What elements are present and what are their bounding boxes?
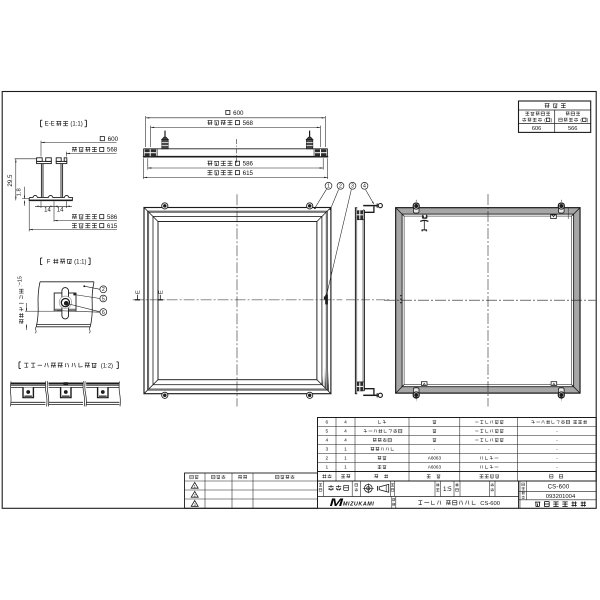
svg-text:F: F [47, 259, 51, 265]
svg-text:1: 1 [327, 184, 330, 190]
svg-text:568: 568 [107, 147, 118, 154]
svg-text:2: 2 [102, 287, 105, 293]
svg-text:(1:2): (1:2) [101, 363, 113, 369]
svg-text:2: 2 [339, 184, 342, 190]
svg-text:2: 2 [194, 494, 196, 498]
svg-text:600: 600 [108, 136, 119, 143]
svg-text:E: E [159, 290, 165, 294]
svg-text:3: 3 [351, 184, 354, 190]
svg-text:14: 14 [44, 207, 51, 213]
svg-text:(1:1): (1:1) [74, 259, 86, 265]
svg-text:3: 3 [325, 447, 328, 453]
svg-text:600: 600 [233, 110, 244, 117]
svg-text:E-E: E-E [45, 122, 55, 128]
svg-text:A6063: A6063 [428, 456, 442, 461]
svg-text:586: 586 [243, 161, 254, 168]
svg-text:1: 1 [194, 485, 196, 489]
svg-text:1: 1 [325, 465, 328, 471]
svg-text:4: 4 [325, 438, 328, 444]
svg-text:M: M [330, 497, 344, 509]
svg-text:4: 4 [344, 438, 347, 444]
svg-text:CS-600: CS-600 [548, 484, 570, 491]
svg-text:MIZUKAMI: MIZUKAMI [343, 502, 374, 508]
svg-text:4: 4 [363, 184, 366, 190]
svg-text:566: 566 [568, 126, 578, 132]
svg-text:29.5: 29.5 [7, 174, 14, 187]
svg-text:615: 615 [243, 170, 254, 177]
svg-text::~15: :~15 [17, 276, 23, 287]
svg-text:1:5: 1:5 [443, 486, 452, 493]
svg-text:E: E [136, 290, 142, 294]
svg-text:2: 2 [325, 456, 328, 462]
svg-text:4: 4 [344, 420, 347, 426]
svg-text:5: 5 [102, 296, 105, 302]
svg-text:568: 568 [243, 120, 254, 127]
svg-text:6: 6 [325, 420, 328, 426]
svg-text:606: 606 [532, 126, 542, 132]
svg-text:1: 1 [344, 447, 347, 453]
svg-text:5: 5 [325, 429, 328, 435]
svg-text:1.8: 1.8 [16, 188, 22, 196]
svg-text:6: 6 [102, 310, 105, 316]
svg-text:615: 615 [107, 223, 118, 230]
svg-text:3: 3 [194, 503, 196, 507]
svg-text:(1:1): (1:1) [70, 122, 82, 128]
svg-text:4: 4 [344, 429, 347, 435]
svg-text:1: 1 [344, 456, 347, 462]
svg-text:CS-600: CS-600 [480, 501, 500, 507]
svg-text:A6063: A6063 [428, 465, 442, 470]
svg-text:1: 1 [344, 465, 347, 471]
svg-text:093201004: 093201004 [546, 494, 576, 500]
svg-text:586: 586 [107, 214, 118, 221]
svg-text:14: 14 [57, 207, 64, 213]
